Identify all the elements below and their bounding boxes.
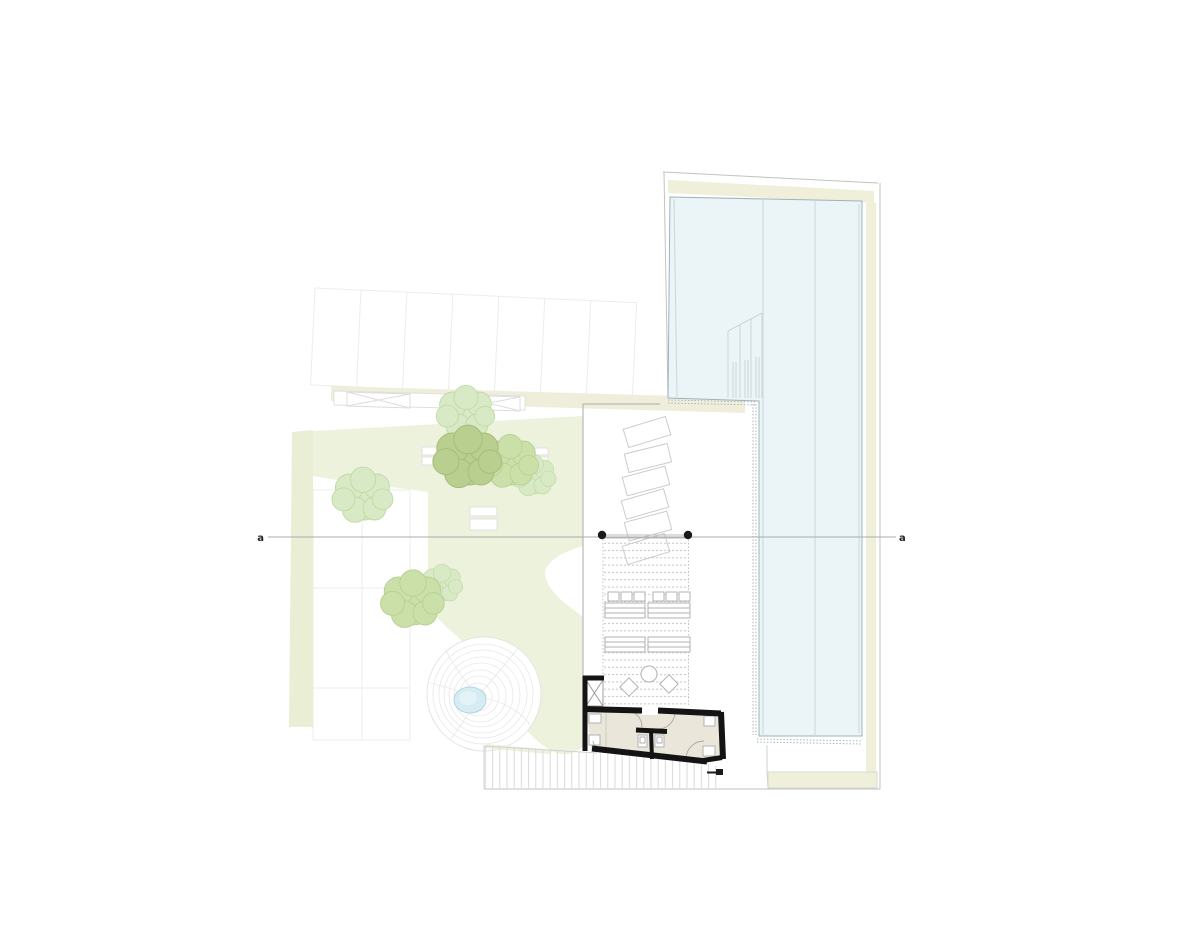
skylight-box xyxy=(586,680,603,706)
round-table xyxy=(641,666,657,682)
terrace-lines xyxy=(767,745,768,788)
door-opening xyxy=(641,705,658,715)
section-marker-dot xyxy=(684,531,692,539)
pond-crater xyxy=(427,637,541,751)
parking-stall-x xyxy=(347,392,410,408)
pond-highlight xyxy=(459,691,477,705)
roof-cream-band-right xyxy=(866,203,876,787)
roof-cream-bar-bottom xyxy=(768,772,877,788)
section-label-left: a xyxy=(257,533,264,544)
site-plan: a a xyxy=(0,0,1200,936)
courtyard xyxy=(583,404,690,705)
glass-roof xyxy=(668,197,862,736)
upper-lot-grid xyxy=(311,288,637,400)
west-green-band xyxy=(289,430,313,727)
section-label-right: a xyxy=(899,533,906,544)
section-marker-dot xyxy=(598,531,606,539)
